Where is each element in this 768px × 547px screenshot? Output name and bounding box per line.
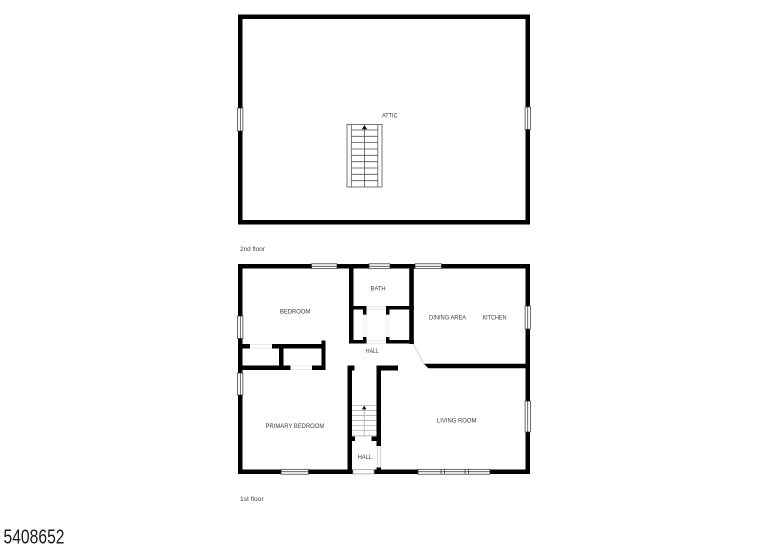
svg-text:2nd floor: 2nd floor [240,246,266,253]
svg-text:ATTIC: ATTIC [382,113,398,120]
svg-text:PRIMARY BEDROOM: PRIMARY BEDROOM [266,423,325,430]
svg-text:BATH: BATH [371,286,386,293]
svg-text:1st floor: 1st floor [240,496,264,503]
svg-text:5408652: 5408652 [4,527,65,547]
svg-text:KITCHEN: KITCHEN [482,314,506,321]
svg-text:DINING AREA: DINING AREA [429,314,467,321]
svg-text:BEDROOM: BEDROOM [280,309,310,316]
svg-text:HALL: HALL [358,454,373,461]
svg-text:HALL: HALL [366,348,379,355]
svg-text:LIVING ROOM: LIVING ROOM [437,417,477,424]
